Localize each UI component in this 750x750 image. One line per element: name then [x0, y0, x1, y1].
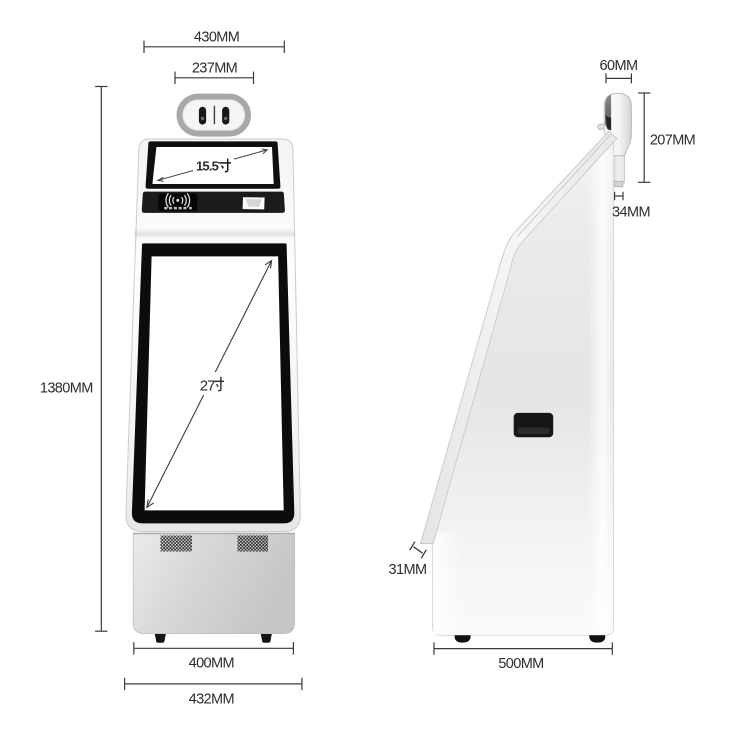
svg-text:15.5: 15.5 — [196, 159, 219, 174]
svg-text:207MM: 207MM — [650, 132, 695, 148]
svg-text:1380MM: 1380MM — [40, 380, 93, 396]
svg-text:34MM: 34MM — [612, 204, 650, 220]
svg-text:60MM: 60MM — [600, 58, 638, 74]
svg-text:31MM: 31MM — [389, 562, 427, 578]
svg-text:27: 27 — [200, 377, 215, 394]
svg-text:432MM: 432MM — [189, 692, 234, 708]
svg-text:237MM: 237MM — [192, 60, 237, 76]
svg-text:430MM: 430MM — [194, 29, 239, 45]
svg-text:400MM: 400MM — [189, 656, 234, 672]
svg-text:500MM: 500MM — [498, 656, 543, 672]
